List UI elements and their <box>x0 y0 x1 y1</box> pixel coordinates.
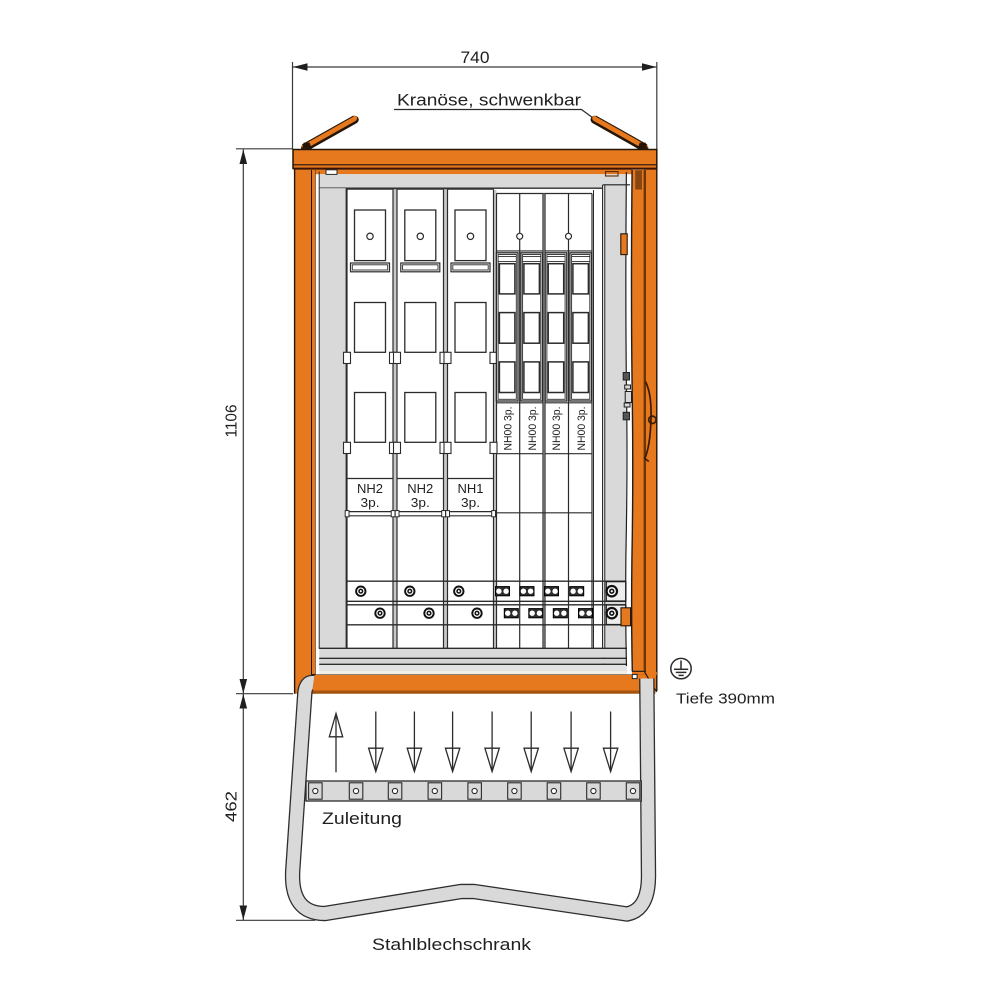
svg-text:Stahlblechschrank: Stahlblechschrank <box>372 935 532 954</box>
svg-text:NH1: NH1 <box>458 481 484 496</box>
svg-text:462: 462 <box>224 791 241 822</box>
svg-text:NH2: NH2 <box>357 481 383 496</box>
svg-text:3p.: 3p. <box>411 495 430 510</box>
svg-text:NH00 3p.: NH00 3p. <box>551 407 563 451</box>
svg-text:3p.: 3p. <box>361 495 380 510</box>
svg-text:3p.: 3p. <box>461 495 480 510</box>
svg-text:NH2: NH2 <box>407 481 433 496</box>
svg-text:Tiefe 390mm: Tiefe 390mm <box>676 692 775 708</box>
svg-text:1106: 1106 <box>224 404 241 437</box>
svg-text:NH00 3p.: NH00 3p. <box>576 407 588 451</box>
svg-text:NH00 3p.: NH00 3p. <box>527 407 539 451</box>
svg-text:NH00 3p.: NH00 3p. <box>502 407 514 451</box>
svg-text:Zuleitung: Zuleitung <box>322 810 402 828</box>
svg-text:740: 740 <box>461 49 490 67</box>
svg-text:Kranöse, schwenkbar: Kranöse, schwenkbar <box>397 92 582 110</box>
